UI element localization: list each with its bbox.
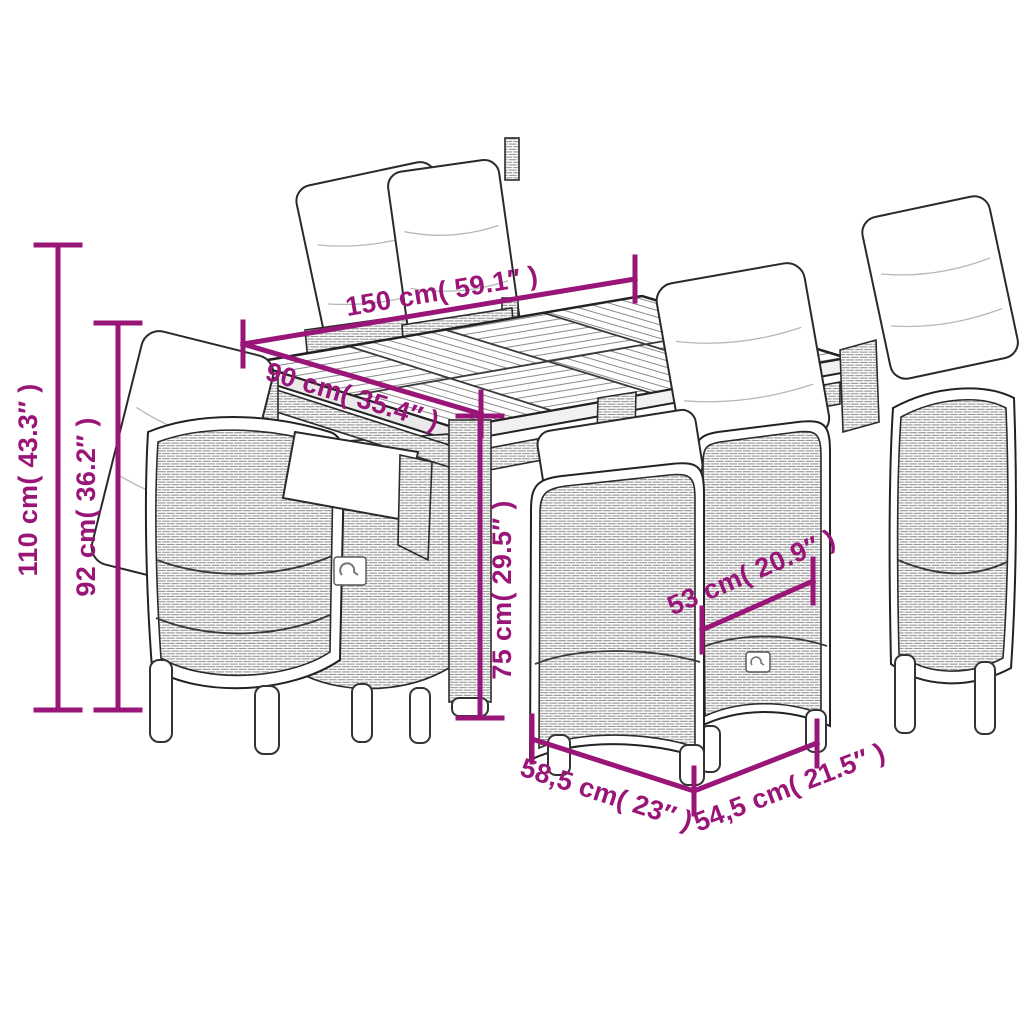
chair-right-leg	[895, 655, 915, 733]
table-foot	[452, 698, 488, 716]
chair-back-middle-headrest-post	[505, 138, 519, 180]
furniture-line-art: 150 cm( 59.1″ ) 90 cm( 35.4″ ) 110 cm( 4…	[0, 0, 1024, 1024]
chair-right-cushion	[859, 193, 1020, 381]
chair-left-leg	[150, 660, 172, 742]
chair-right-leg	[975, 662, 995, 734]
dimension-diagram: 150 cm( 59.1″ ) 90 cm( 35.4″ ) 110 cm( 4…	[0, 0, 1024, 1024]
dimension-label-backrest-height: 92 cm( 36.2″ )	[71, 417, 101, 596]
chair-left-label-tag	[334, 557, 366, 585]
dimension-label-table-height: 75 cm( 29.5″ )	[487, 500, 517, 679]
table-leg-front-left	[449, 420, 491, 702]
chair-left-armrest	[398, 455, 432, 560]
chair-right	[840, 193, 1021, 734]
chair-right-armrest	[840, 340, 879, 432]
chair-front-right-label-tag	[746, 652, 770, 672]
chair-left-leg	[255, 686, 279, 754]
dimension-label-overall-height: 110 cm( 43.3″ )	[13, 383, 43, 576]
